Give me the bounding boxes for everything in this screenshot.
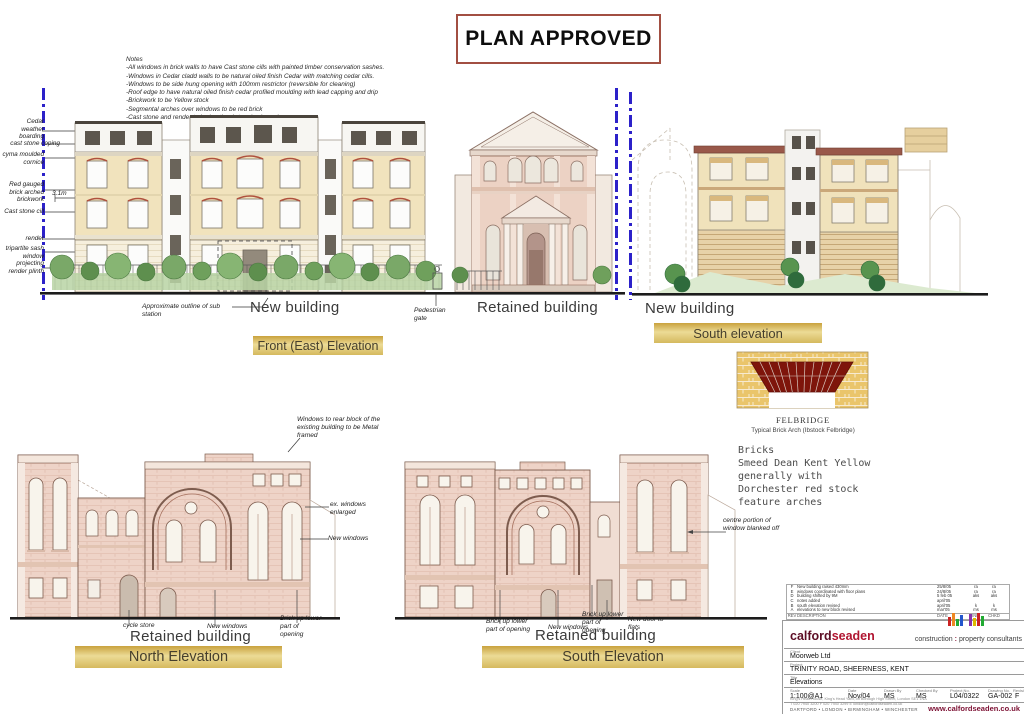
- tagline: construction:property consultants: [902, 636, 1022, 643]
- brick-note-line: Dorchester red stock: [738, 483, 870, 496]
- label-retained-building-front: Retained building: [477, 300, 598, 316]
- title-north-elevation: North Elevation: [75, 646, 282, 668]
- brick-note-line: feature arches: [738, 496, 870, 509]
- drawing-sheet: PLAN APPROVED Notes -All windows in bric…: [0, 0, 1024, 714]
- setting-out-line-right: [629, 92, 632, 300]
- setting-out-line-mid: [615, 88, 618, 300]
- label-new-building-south-top: New building: [645, 301, 734, 317]
- tagline-consultants: property consultants: [959, 636, 1022, 643]
- title-south-elevation-top: South elevation: [654, 323, 822, 343]
- client-value: Moorweb Ltd: [790, 653, 830, 660]
- offices-line: DARTFORD • LONDON • BIRMINGHAM • WINCHES…: [790, 707, 918, 712]
- title-front-east-elevation: Front (East) Elevation: [253, 336, 383, 355]
- callout-cast-stone-coping: cast stone coping: [2, 140, 60, 148]
- brick-detail-name: FELBRIDGE: [735, 415, 871, 425]
- label-new-building-front: New building: [250, 300, 339, 316]
- rev-header-cell: CHKD: [985, 614, 1003, 619]
- callout-projecting-render-plinth: projecting render plinth: [2, 260, 44, 275]
- callout-cedar-weather-boarding: Cedar weather boarding: [14, 118, 44, 141]
- title-north-elevation-text: North Elevation: [129, 649, 228, 665]
- title-south-elevation-top-text: South elevation: [693, 326, 783, 341]
- brick-detail-notes: Bricks Smeed Dean Kent Yellow generally …: [738, 444, 870, 509]
- drawing-no-value: GA-002: [988, 693, 1012, 700]
- callout-centre-portion-blanked: centre portion of window blanked off: [723, 517, 781, 533]
- consultants-logo-icon: [948, 612, 984, 626]
- brand-light: seaden: [832, 629, 875, 643]
- label-substation: Approximate outline of sub station: [142, 303, 237, 319]
- label-retained-building-north: Retained building: [130, 629, 251, 645]
- title-south-elevation-bottom-text: South Elevation: [562, 649, 664, 665]
- title-front-east-elevation-text: Front (East) Elevation: [258, 339, 379, 353]
- label-north-brick-up: Brick up lower part of opening: [280, 615, 322, 639]
- title-value: Elevations: [790, 679, 822, 686]
- calfordseaden-logo: calfordseaden: [790, 629, 875, 643]
- callout-ex-windows-enlarged: ex. windows enlarged: [330, 501, 376, 517]
- callout-cast-stone-cill: Cast stone cill: [2, 208, 44, 216]
- brick-note-line: generally with: [738, 470, 870, 483]
- callout-render: render: [2, 235, 44, 243]
- project-value: TRINITY ROAD, SHEERNESS, KENT: [790, 666, 909, 673]
- tagline-construction: construction: [915, 636, 953, 643]
- project-no-value: L04/0322: [950, 693, 979, 700]
- title-south-elevation-bottom: South Elevation: [482, 646, 744, 668]
- rev-header-cell: DESCRIPTION: [797, 614, 937, 619]
- callout-metal-framed: Windows to rear block of the existing bu…: [297, 416, 389, 440]
- brick-detail-caption: Typical Brick Arch (Ibstock Felbridge): [722, 427, 884, 434]
- brand-bold: calford: [790, 629, 832, 643]
- revision-value: F: [1015, 693, 1019, 700]
- brick-note-line: Smeed Dean Kent Yellow: [738, 457, 870, 470]
- rev-header-cell: REV: [787, 614, 797, 619]
- callout-new-windows-mid: New windows: [328, 535, 378, 543]
- brick-note-line: Bricks: [738, 444, 870, 457]
- callout-tripartite-sash-window: tripartite sash window: [2, 245, 44, 260]
- callout-cyma-moulded-cornice: cyma moulded cornice: [2, 151, 44, 166]
- callout-red-gauged-brick: Red gauged brick arched brickwork: [0, 181, 44, 204]
- label-retained-building-south: Retained building: [535, 628, 656, 644]
- address-line: King's Head House, King's Head Yard, off…: [790, 697, 927, 702]
- label-south-brick-up-1: Brick up lower part of opening: [486, 618, 530, 634]
- dimension-3-1m: 3.1m: [52, 190, 67, 198]
- website-link: www.calfordseaden.co.uk: [900, 704, 1020, 713]
- label-pedestrian-gate: Pedestrian gate: [414, 307, 454, 323]
